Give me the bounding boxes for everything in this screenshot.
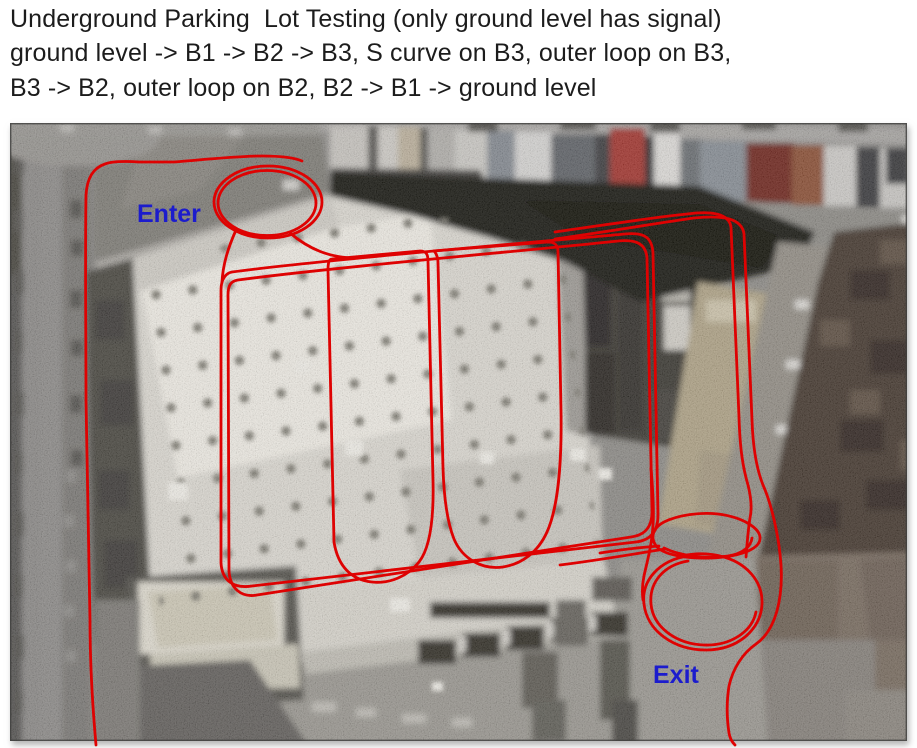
- svg-text:Exit: Exit: [653, 661, 700, 689]
- svg-text:Enter: Enter: [137, 200, 201, 228]
